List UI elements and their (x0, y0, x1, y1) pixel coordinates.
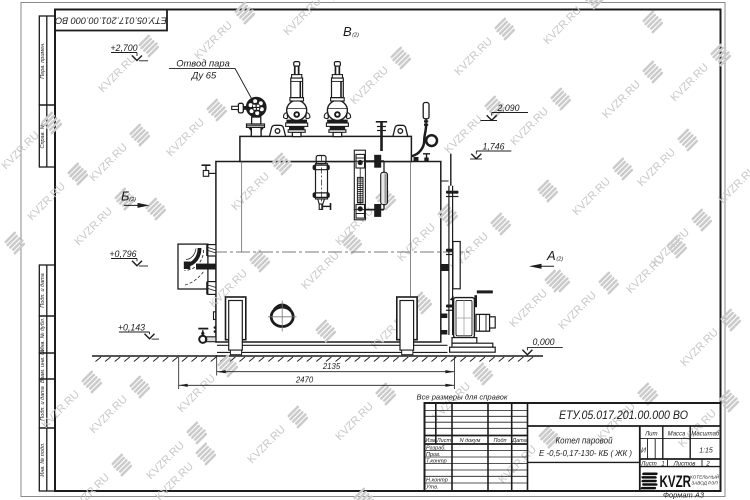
svg-text:(2): (2) (556, 257, 563, 263)
svg-text:+0,796: +0,796 (109, 249, 136, 259)
svg-text:Масса: Масса (668, 432, 686, 438)
svg-text:ЕТУ.05.017.201.00.000 ВО: ЕТУ.05.017.201.00.000 ВО (55, 16, 167, 26)
svg-text:N докум: N докум (460, 438, 481, 444)
svg-text:Утв.: Утв. (425, 485, 439, 491)
svg-text:КОТЕЛЬНЫЙ: КОТЕЛЬНЫЙ (690, 473, 720, 480)
svg-text:Инв. № подл.: Инв. № подл. (40, 442, 46, 476)
svg-text:Подп. и дата: Подп. и дата (40, 273, 46, 307)
svg-text:ЕТУ.05.017.201.00.000 ВО: ЕТУ.05.017.201.00.000 ВО (559, 408, 688, 422)
svg-text:Т.контр: Т.контр (426, 459, 447, 465)
svg-text:2,090: 2,090 (496, 103, 519, 113)
svg-text:А: А (546, 248, 556, 263)
svg-text:Инв. № дубл.: Инв. № дубл. (40, 318, 46, 352)
svg-text:Все размеры для справок: Все размеры для справок (417, 393, 508, 402)
svg-text:В: В (343, 24, 352, 39)
svg-text:Лит: Лит (644, 432, 657, 438)
svg-text:Дата: Дата (511, 438, 527, 444)
svg-text:Перв. примен.: Перв. примен. (40, 42, 46, 79)
svg-text:Взам. инв. №: Взам. инв. № (40, 349, 46, 383)
svg-text:2470: 2470 (295, 376, 314, 385)
svg-text:0,000: 0,000 (532, 337, 554, 347)
svg-text:KVZR: KVZR (660, 473, 692, 491)
svg-text:Изм: Изм (425, 438, 435, 444)
svg-text:1: 1 (661, 461, 664, 467)
svg-text:Н.контр: Н.контр (426, 478, 448, 484)
svg-text:2: 2 (705, 461, 710, 467)
svg-text:Разраб.: Разраб. (426, 446, 446, 452)
svg-text:Лист: Лист (640, 461, 656, 467)
svg-text:1,746: 1,746 (482, 142, 504, 152)
svg-text:Подп: Подп (493, 438, 506, 444)
svg-text:+2,700: +2,700 (110, 43, 137, 53)
svg-text:Справ. №: Справ. № (40, 123, 46, 148)
svg-text:Масштаб: Масштаб (691, 432, 720, 438)
svg-text:1:15: 1:15 (699, 448, 713, 455)
svg-text:(2): (2) (352, 33, 359, 39)
svg-text:Пров.: Пров. (426, 452, 441, 458)
svg-text:Отвод пара: Отвод пара (176, 58, 230, 69)
svg-text:Котел паровой: Котел паровой (556, 436, 613, 446)
svg-text:Лист: Лист (436, 438, 452, 444)
svg-text:+0,143: +0,143 (118, 323, 145, 333)
svg-text:Формат А3: Формат А3 (663, 491, 705, 500)
svg-text:2135: 2135 (322, 362, 341, 371)
svg-text:(2): (2) (129, 197, 136, 203)
svg-text:ЗАВОД РЭП: ЗАВОД РЭП (691, 481, 718, 486)
svg-text:Ду 65: Ду 65 (191, 70, 217, 81)
svg-text:Е -0,5-0,17-130- КБ ( ЖК ): Е -0,5-0,17-130- КБ ( ЖК ) (539, 448, 632, 458)
svg-text:Листов: Листов (673, 461, 696, 467)
